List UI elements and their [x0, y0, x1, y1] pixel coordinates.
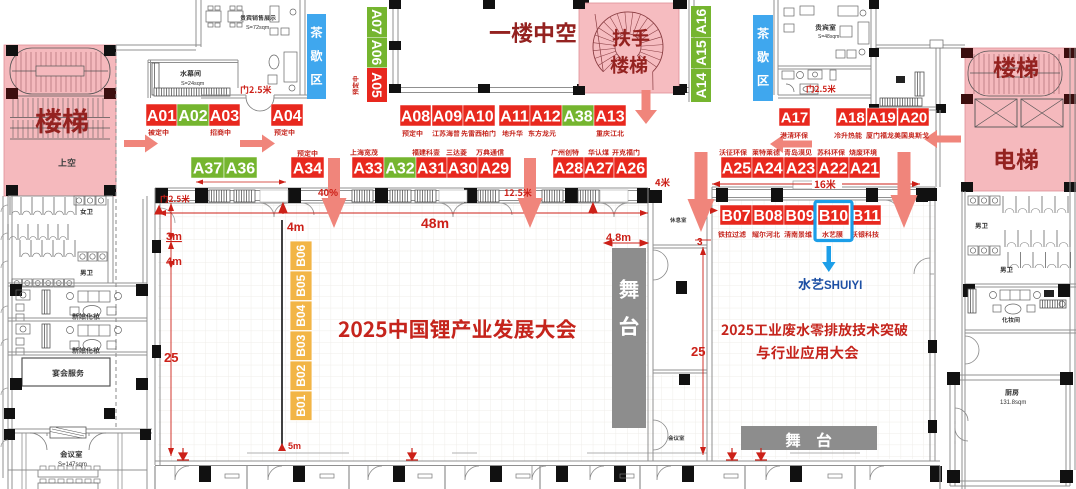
svg-text:25: 25	[164, 350, 178, 365]
svg-text:A04: A04	[272, 108, 301, 125]
svg-text:131.8sqm: 131.8sqm	[1000, 400, 1026, 406]
svg-text:A12: A12	[531, 108, 560, 125]
svg-text:A08: A08	[401, 108, 430, 125]
svg-text:A23: A23	[786, 160, 815, 177]
svg-text:A36: A36	[226, 160, 255, 177]
svg-text:B01: B01	[294, 394, 308, 416]
svg-text:4m: 4m	[287, 220, 304, 234]
svg-text:A31: A31	[417, 160, 446, 177]
svg-text:A21: A21	[850, 160, 879, 177]
svg-text:A25: A25	[722, 160, 751, 177]
svg-text:A38: A38	[563, 108, 592, 125]
svg-text:A24: A24	[753, 160, 782, 177]
svg-text:B05: B05	[294, 274, 308, 296]
svg-text:A17: A17	[781, 109, 809, 126]
svg-text:3: 3	[697, 237, 703, 248]
svg-text:A11: A11	[500, 108, 529, 125]
svg-text:B11: B11	[852, 208, 881, 225]
svg-text:B09: B09	[785, 208, 814, 225]
svg-text:A13: A13	[595, 108, 624, 125]
svg-text:A20: A20	[900, 109, 928, 126]
svg-text:3m: 3m	[166, 231, 182, 243]
svg-text:A22: A22	[818, 160, 847, 177]
svg-text:A19: A19	[868, 109, 896, 126]
svg-text:A14: A14	[693, 72, 709, 98]
svg-text:A26: A26	[616, 160, 645, 177]
svg-text:B03: B03	[294, 334, 308, 356]
svg-text:A09: A09	[433, 108, 462, 125]
svg-text:B07: B07	[721, 208, 750, 225]
svg-text:A06: A06	[369, 40, 385, 66]
svg-text:A16: A16	[693, 8, 709, 34]
svg-text:4.8m: 4.8m	[606, 232, 631, 244]
svg-text:B08: B08	[753, 208, 782, 225]
svg-text:A02: A02	[178, 108, 207, 125]
svg-text:A33: A33	[353, 160, 382, 177]
svg-text:A07: A07	[369, 9, 385, 35]
svg-text:B02: B02	[294, 364, 308, 386]
svg-text:A34: A34	[293, 160, 322, 177]
svg-text:B06: B06	[294, 244, 308, 266]
svg-text:40%: 40%	[318, 188, 338, 199]
svg-text:25: 25	[691, 344, 705, 359]
svg-text:48m: 48m	[421, 215, 449, 231]
svg-text:S=147sqm: S=147sqm	[58, 462, 87, 468]
svg-text:B10: B10	[819, 208, 848, 225]
svg-text:A32: A32	[385, 160, 414, 177]
svg-text:A15: A15	[693, 40, 709, 66]
svg-text:B04: B04	[294, 304, 308, 326]
svg-text:A18: A18	[837, 109, 865, 126]
svg-text:A37: A37	[193, 160, 222, 177]
svg-text:A27: A27	[584, 160, 613, 177]
svg-text:5m: 5m	[288, 441, 301, 451]
svg-text:S=72sqm: S=72sqm	[246, 25, 270, 31]
svg-text:4m: 4m	[166, 256, 182, 268]
svg-text:S=48sqm: S=48sqm	[818, 34, 839, 40]
svg-text:A05: A05	[369, 72, 385, 98]
svg-text:A30: A30	[448, 160, 477, 177]
svg-text:A29: A29	[480, 160, 509, 177]
svg-text:A28: A28	[554, 160, 583, 177]
svg-text:A03: A03	[210, 108, 239, 125]
svg-text:S=24sqm: S=24sqm	[181, 81, 205, 87]
svg-text:SHUIYI: SHUIYI	[824, 280, 862, 292]
svg-text:A01: A01	[147, 108, 176, 125]
svg-text:A10: A10	[464, 108, 493, 125]
